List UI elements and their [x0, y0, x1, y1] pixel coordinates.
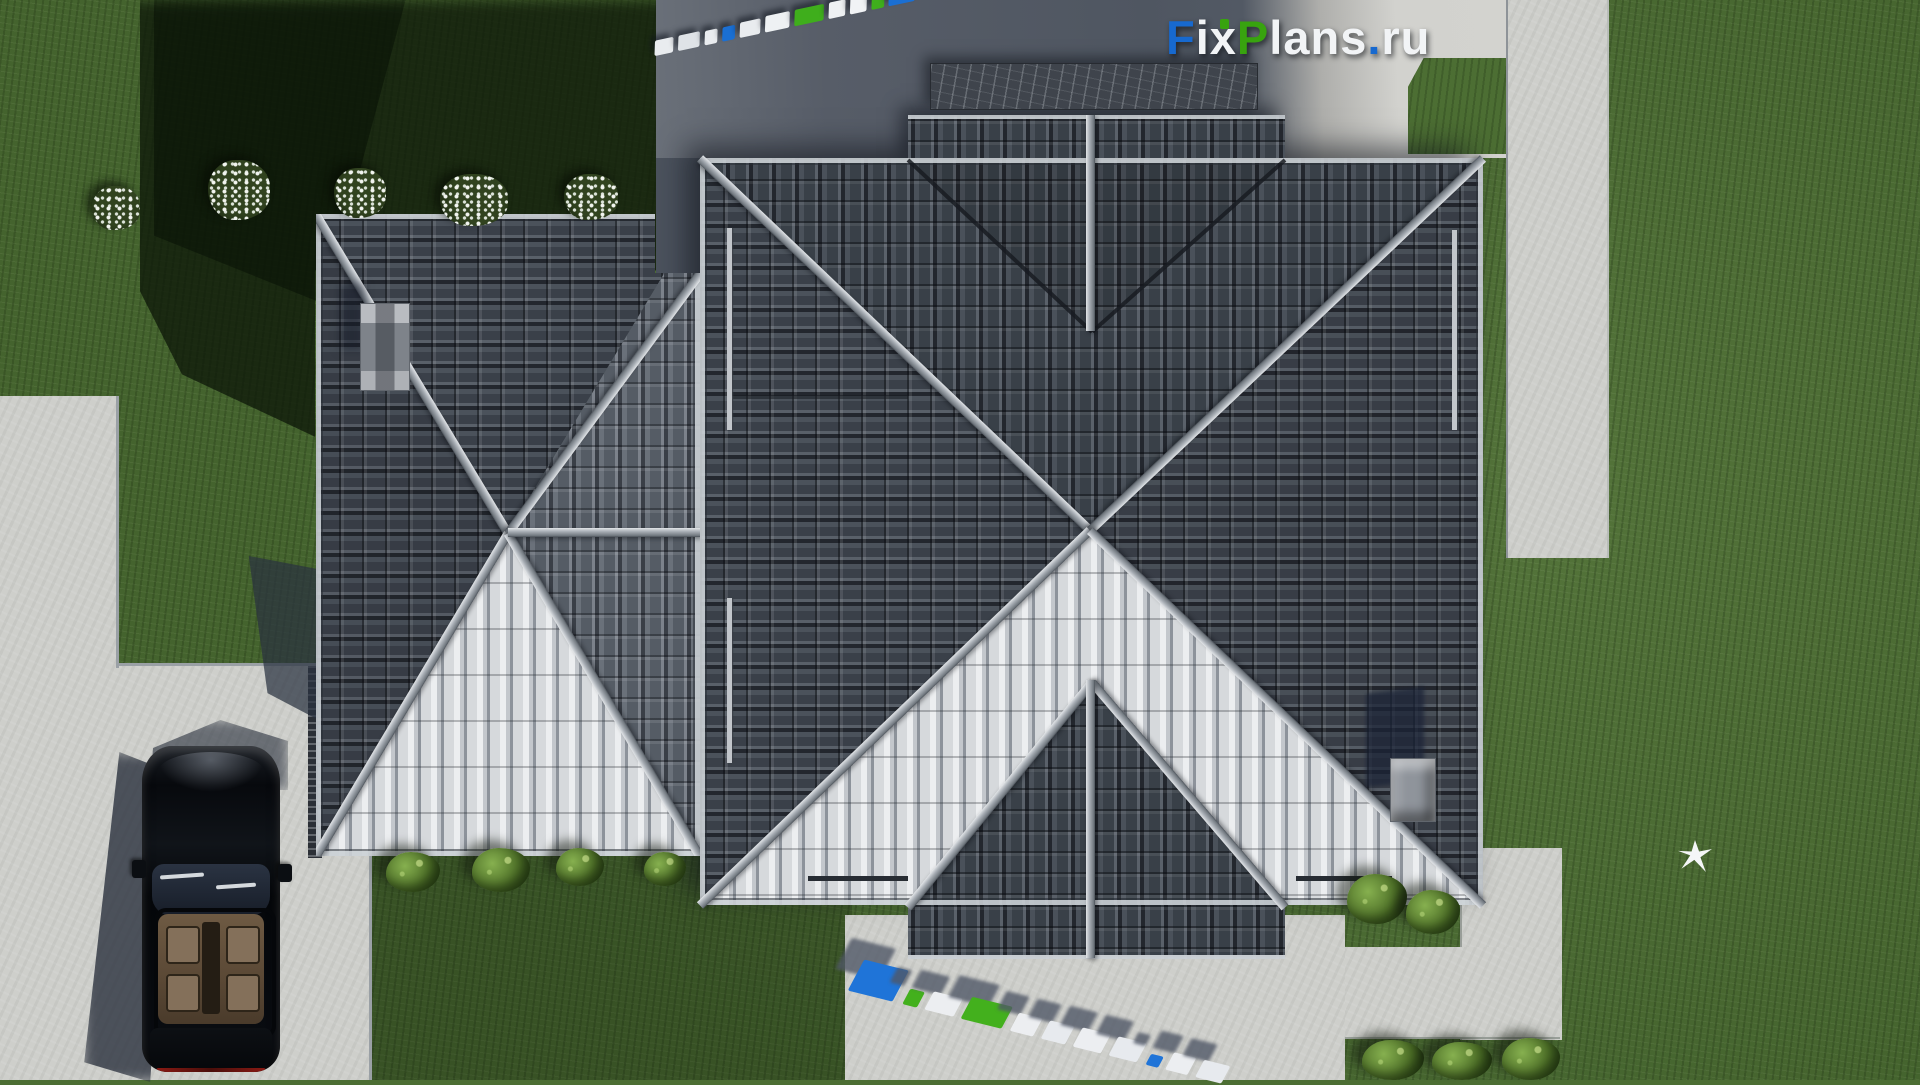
south-walkway-horizontal: [1345, 947, 1560, 1039]
vent-pipe: [1452, 230, 1457, 430]
gable-ridge: [1086, 680, 1095, 958]
hood-shine: [158, 752, 264, 792]
south-gable-roof: [908, 905, 1285, 959]
logo-segment: ru: [1381, 11, 1430, 64]
flower-bush: [334, 168, 386, 218]
stone-terrace-slab: [930, 63, 1258, 110]
flower-bush: [208, 160, 270, 220]
chimney: [360, 303, 410, 391]
taillight: [156, 1068, 266, 1072]
curb: [116, 396, 119, 668]
glass-reflection: [160, 872, 204, 879]
flower-bush: [564, 174, 618, 220]
watermark-letter-slab: [704, 28, 717, 45]
side-mirror: [278, 864, 292, 882]
car-body: [142, 746, 280, 1072]
grass-wedge: [1408, 58, 1506, 154]
rear-deck: [150, 1028, 272, 1072]
logo-segment: P: [1237, 11, 1269, 64]
tile-seam: [733, 395, 908, 399]
gable-ridge: [1086, 115, 1095, 331]
watermark-letter-slab: [902, 989, 925, 1008]
snow-guard: [808, 876, 908, 881]
logo-i-dot: [1220, 19, 1229, 29]
vent-pipe: [727, 228, 732, 430]
garage-roof: [316, 214, 700, 856]
chimney: [1390, 758, 1436, 822]
logo-segment: .: [1367, 11, 1381, 64]
logo-segment: F: [1166, 11, 1196, 64]
watermark-letter-slab: [722, 25, 735, 42]
sunroof-frame: [154, 908, 276, 1038]
car: [118, 712, 288, 1080]
side-mirror: [132, 860, 146, 878]
connector-ridge: [508, 528, 700, 537]
glass-reflection: [216, 883, 256, 890]
flower-bush: [92, 186, 140, 230]
flower-bush: [440, 174, 508, 226]
vent-pipe: [727, 598, 732, 763]
watermark-letter-slab: [1195, 1060, 1230, 1084]
right-walkway: [1506, 0, 1609, 558]
main-roof: [700, 158, 1483, 905]
site-logo: FixPlans.ru: [1166, 10, 1430, 65]
logo-segment: lans: [1269, 11, 1367, 64]
logo-segment: ix: [1196, 11, 1237, 64]
